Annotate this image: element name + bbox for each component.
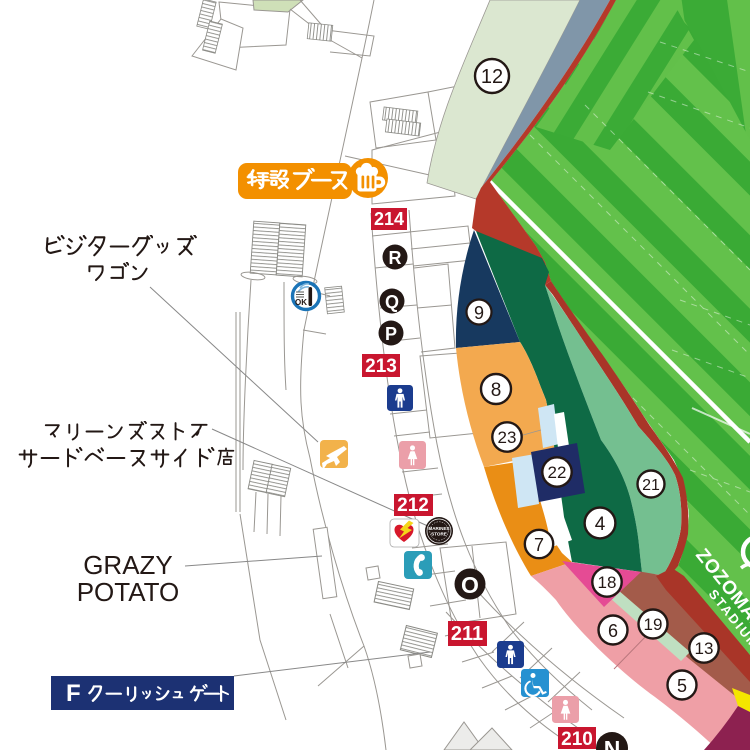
svg-text:POTATO: POTATO	[77, 577, 180, 607]
svg-text:OK: OK	[295, 298, 307, 307]
svg-text:6: 6	[608, 621, 618, 641]
svg-text:F: F	[66, 680, 81, 707]
svg-text:7: 7	[534, 535, 544, 555]
svg-text:4: 4	[595, 514, 606, 535]
svg-text:Q: Q	[385, 292, 399, 312]
svg-text:213: 213	[365, 356, 397, 377]
svg-text:P: P	[385, 324, 397, 344]
svg-text:211: 211	[451, 623, 483, 645]
svg-text:12: 12	[481, 66, 503, 88]
svg-text:5: 5	[677, 676, 687, 696]
svg-text:19: 19	[644, 615, 663, 634]
svg-text:R: R	[389, 248, 402, 268]
svg-text:210: 210	[561, 729, 593, 750]
svg-text:18: 18	[598, 573, 617, 592]
svg-text:N: N	[604, 736, 621, 750]
svg-text:21: 21	[642, 477, 660, 494]
svg-text:MARINES: MARINES	[428, 526, 449, 531]
svg-text:13: 13	[695, 639, 714, 658]
svg-text:212: 212	[397, 495, 429, 516]
svg-text:23: 23	[498, 428, 517, 447]
svg-text:8: 8	[491, 380, 502, 401]
svg-text:STORE: STORE	[431, 532, 447, 537]
svg-text:9: 9	[474, 303, 484, 323]
svg-text:O: O	[461, 572, 479, 598]
svg-text:214: 214	[374, 209, 404, 229]
svg-text:GRAZY: GRAZY	[83, 550, 173, 580]
svg-text:22: 22	[548, 463, 567, 482]
